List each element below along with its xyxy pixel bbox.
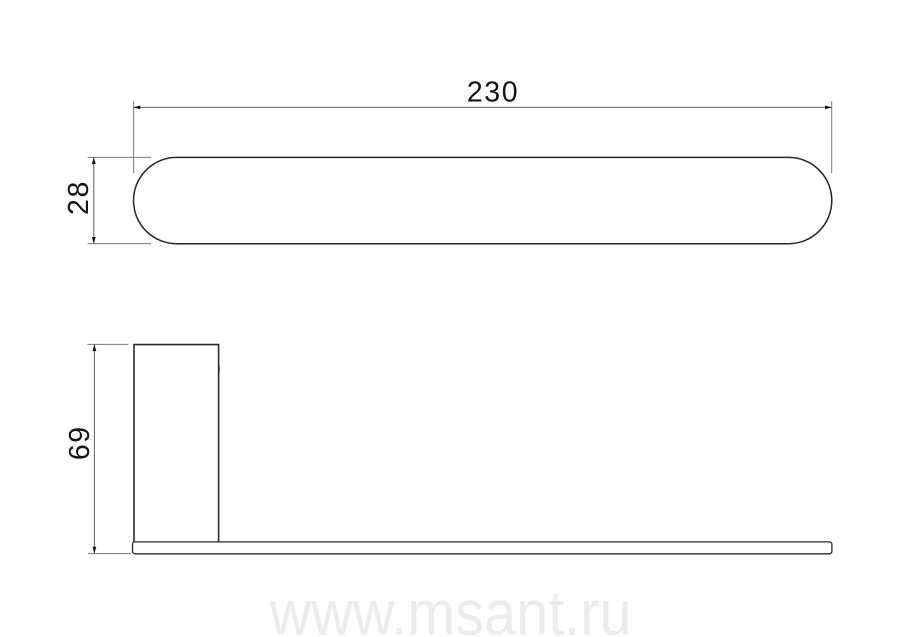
svg-text:28: 28 bbox=[63, 180, 95, 215]
svg-text:www.msant.ru: www.msant.ru bbox=[269, 577, 632, 637]
svg-text:69: 69 bbox=[64, 425, 96, 460]
svg-text:230: 230 bbox=[467, 77, 519, 109]
